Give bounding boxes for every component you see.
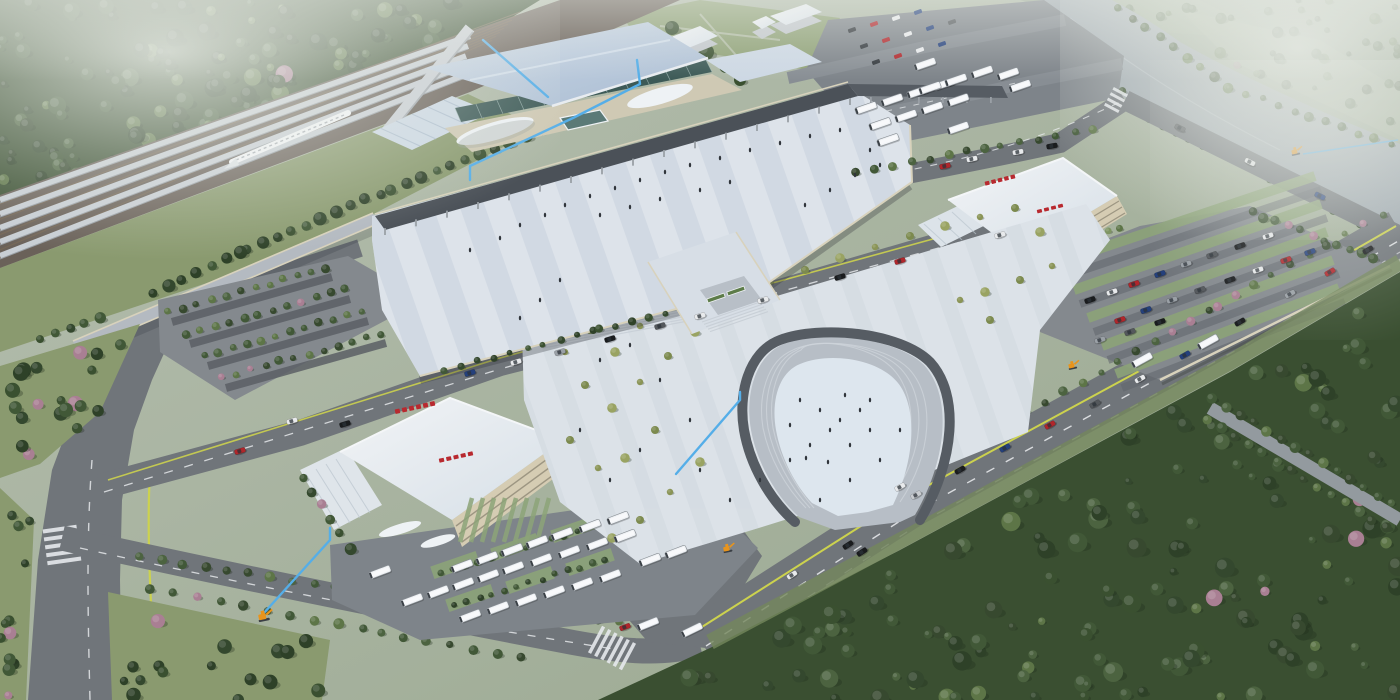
person — [839, 128, 841, 133]
person — [614, 186, 616, 191]
canopy-column — [570, 176, 572, 183]
person — [829, 428, 831, 433]
person — [789, 423, 791, 428]
person — [749, 148, 751, 153]
fog-right — [1150, 60, 1400, 340]
person — [539, 298, 541, 303]
person — [799, 398, 801, 403]
person — [699, 468, 701, 473]
person — [689, 163, 691, 168]
person — [849, 443, 851, 448]
canopy-column — [632, 159, 634, 166]
render-stage — [0, 0, 1400, 700]
person — [869, 398, 871, 403]
person — [854, 173, 856, 178]
fog-top — [0, 0, 1400, 80]
person — [719, 156, 721, 161]
person — [879, 458, 881, 463]
canopy-column — [694, 141, 696, 148]
person — [519, 316, 521, 321]
person — [809, 443, 811, 448]
horseshoe-amphitheater — [742, 332, 949, 530]
person — [659, 378, 661, 383]
person — [849, 478, 851, 483]
person — [689, 418, 691, 423]
person — [789, 458, 791, 463]
person — [869, 148, 871, 153]
viaduct-column — [918, 97, 920, 103]
person — [839, 418, 841, 423]
canopy-column — [818, 107, 820, 114]
person — [589, 194, 591, 199]
person — [599, 213, 601, 218]
person — [729, 498, 731, 503]
canopy-column — [663, 150, 665, 157]
person — [827, 460, 829, 465]
canopy-column — [756, 124, 758, 131]
canopy-column — [601, 167, 603, 174]
car-glass — [1049, 144, 1053, 148]
person — [729, 180, 731, 185]
canopy-column — [849, 98, 851, 105]
car-glass — [942, 164, 947, 169]
person — [629, 205, 631, 210]
person — [805, 456, 807, 461]
person — [804, 203, 806, 208]
canopy-column — [725, 133, 727, 140]
person — [564, 203, 566, 208]
person — [664, 170, 666, 175]
person — [819, 408, 821, 413]
person — [809, 134, 811, 139]
car-glass — [1015, 150, 1019, 154]
person — [859, 408, 861, 413]
person — [829, 188, 831, 193]
canopy-column — [787, 115, 789, 122]
person — [629, 343, 631, 348]
person — [659, 197, 661, 202]
person — [759, 478, 761, 483]
person — [639, 448, 641, 453]
person — [844, 393, 846, 398]
person — [579, 428, 581, 433]
car-glass — [969, 157, 974, 162]
person — [609, 478, 611, 483]
person — [559, 278, 561, 283]
aerial-render — [0, 0, 1400, 700]
person — [699, 188, 701, 193]
person — [869, 428, 871, 433]
person — [599, 358, 601, 363]
person — [819, 498, 821, 503]
viaduct-column — [990, 97, 992, 103]
person — [899, 428, 901, 433]
person — [779, 141, 781, 146]
viaduct-column — [942, 97, 944, 103]
person — [879, 163, 881, 168]
person — [639, 178, 641, 183]
